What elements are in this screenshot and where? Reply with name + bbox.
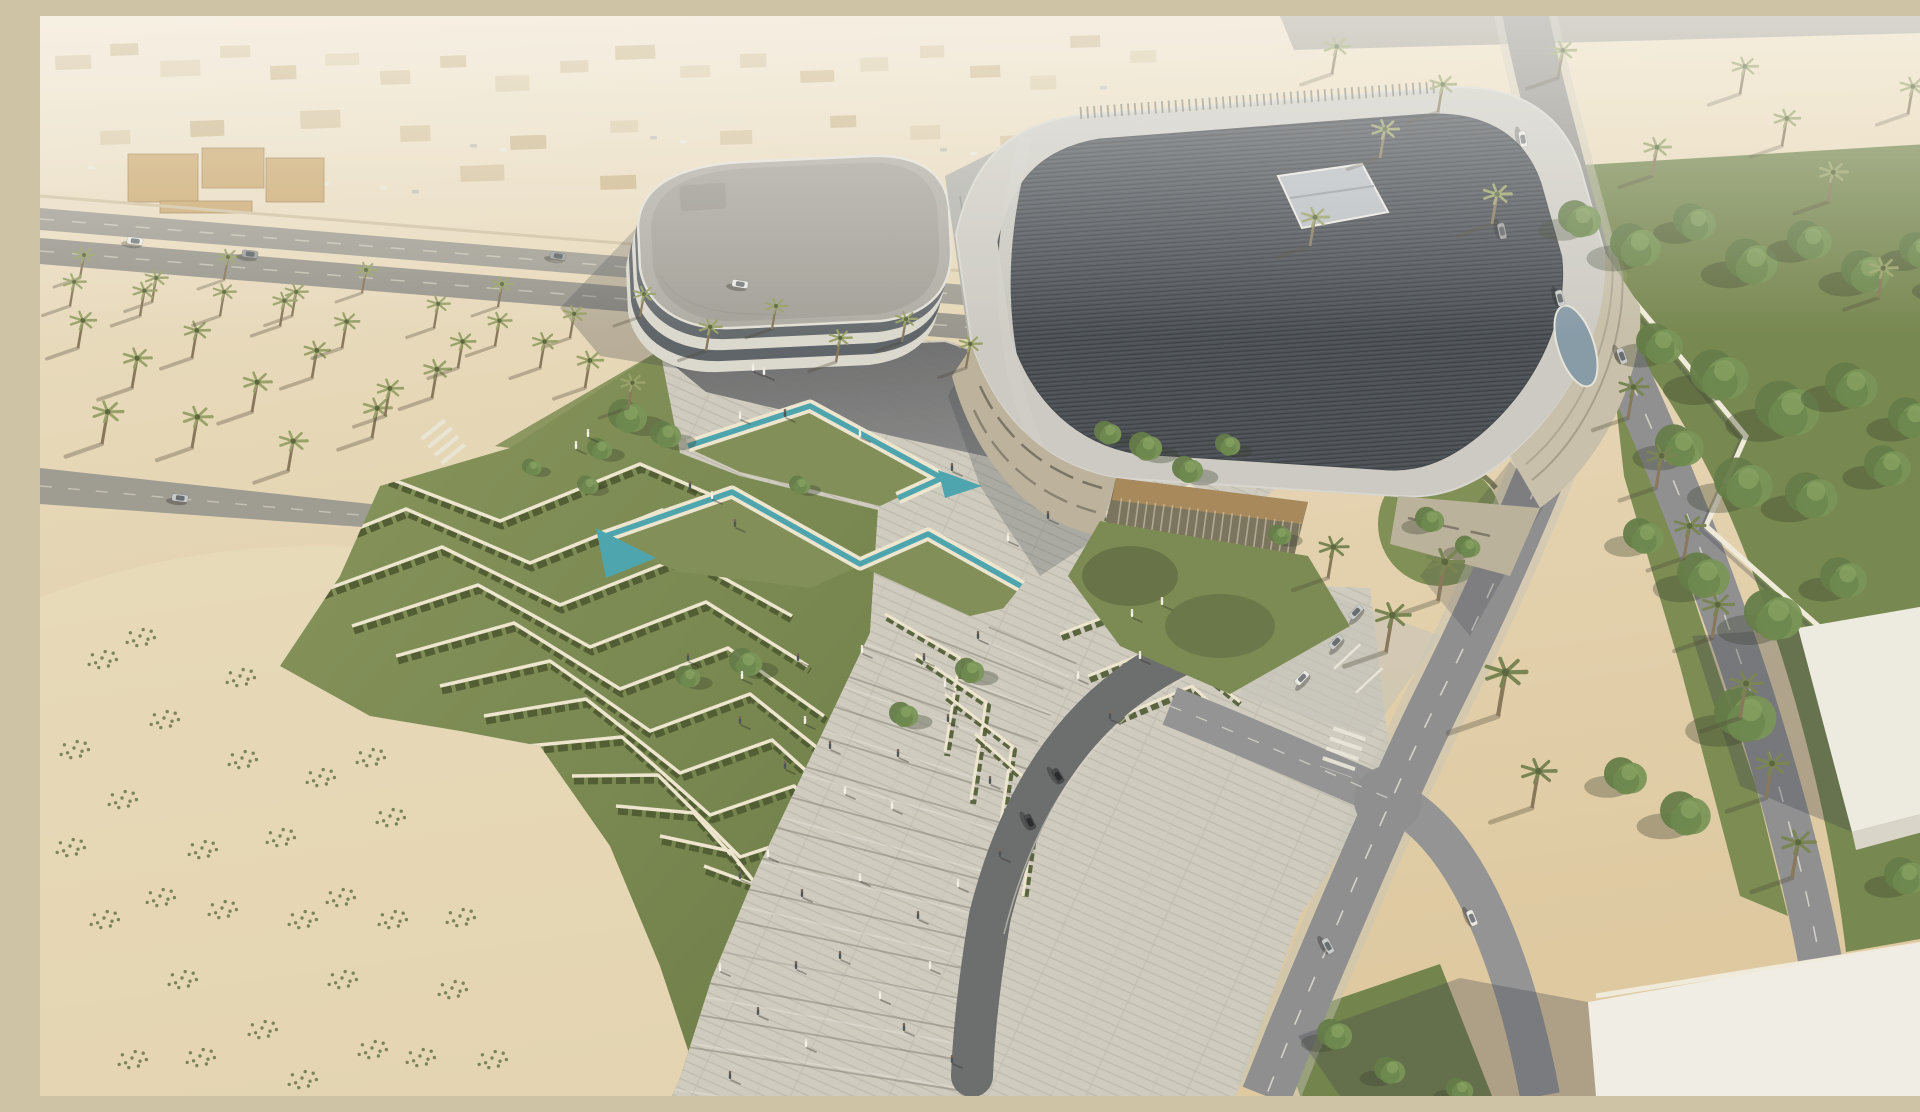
warm-tint-overlay — [40, 16, 1920, 1096]
architectural-aerial-rendering — [40, 16, 1920, 1096]
scene-canvas — [40, 16, 1920, 1096]
